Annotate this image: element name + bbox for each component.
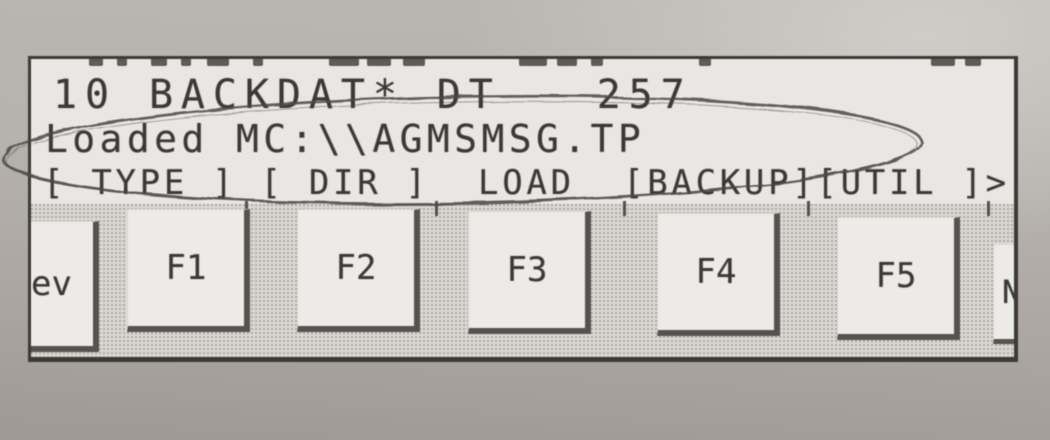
clipped-text-fragment — [207, 59, 229, 66]
function-key-f5[interactable]: F5 — [837, 217, 960, 340]
photo-background: 10 BACKDAT* DT 257 Loaded MC:\\AGMSMSG.T… — [0, 0, 1050, 440]
clipped-text-fragment — [519, 59, 547, 66]
pendant-screen-photo: 10 BACKDAT* DT 257 Loaded MC:\\AGMSMSG.T… — [0, 0, 1050, 440]
function-key-label: F3 — [507, 250, 548, 290]
clipped-text-fragment — [117, 59, 127, 66]
clipped-text-fragment — [557, 59, 577, 66]
clipped-text-fragment — [329, 59, 359, 66]
function-key-f2[interactable]: F2 — [297, 209, 420, 332]
clipped-text-fragment — [89, 59, 103, 66]
clipped-text-fragment — [253, 59, 263, 66]
loaded-message-line: Loaded MC:\\AGMSMSG.TP — [45, 117, 645, 161]
softkey-menu-line: [ TYPE ] [ DIR ] LOAD [BACKUP][UTIL ]> — [43, 163, 1010, 203]
separator-tick — [623, 201, 626, 216]
function-key-f4[interactable]: F4 — [657, 213, 780, 336]
prev-key-label: ev — [31, 264, 72, 304]
function-key-area: ev F1F2F3F4F5 N — [31, 204, 1014, 357]
function-key-label: F2 — [336, 248, 377, 288]
clipped-text-fragment — [965, 59, 981, 66]
next-key-label: N — [1002, 273, 1018, 311]
next-key[interactable]: N — [993, 244, 1018, 344]
separator-tick — [807, 201, 810, 216]
function-key-f1[interactable]: F1 — [127, 209, 250, 332]
function-key-label: F5 — [876, 256, 917, 296]
function-key-label: F1 — [166, 248, 207, 288]
clipped-text-fragment — [931, 59, 955, 66]
clipped-text-fragment — [403, 59, 425, 66]
clipped-text-fragment — [151, 59, 167, 66]
clipped-text-fragment — [699, 59, 711, 66]
separator-tick — [435, 201, 438, 216]
clipped-text-fragment — [591, 59, 603, 66]
function-key-f3[interactable]: F3 — [468, 211, 591, 334]
prev-key[interactable]: ev — [28, 221, 99, 352]
clipped-text-fragment — [181, 59, 191, 66]
screen-frame: 10 BACKDAT* DT 257 Loaded MC:\\AGMSMSG.T… — [28, 56, 1018, 362]
function-key-label: F4 — [696, 252, 737, 292]
file-list-line: 10 BACKDAT* DT 257 — [53, 72, 693, 118]
clipped-text-fragment — [367, 59, 391, 66]
separator-tick — [987, 201, 990, 216]
